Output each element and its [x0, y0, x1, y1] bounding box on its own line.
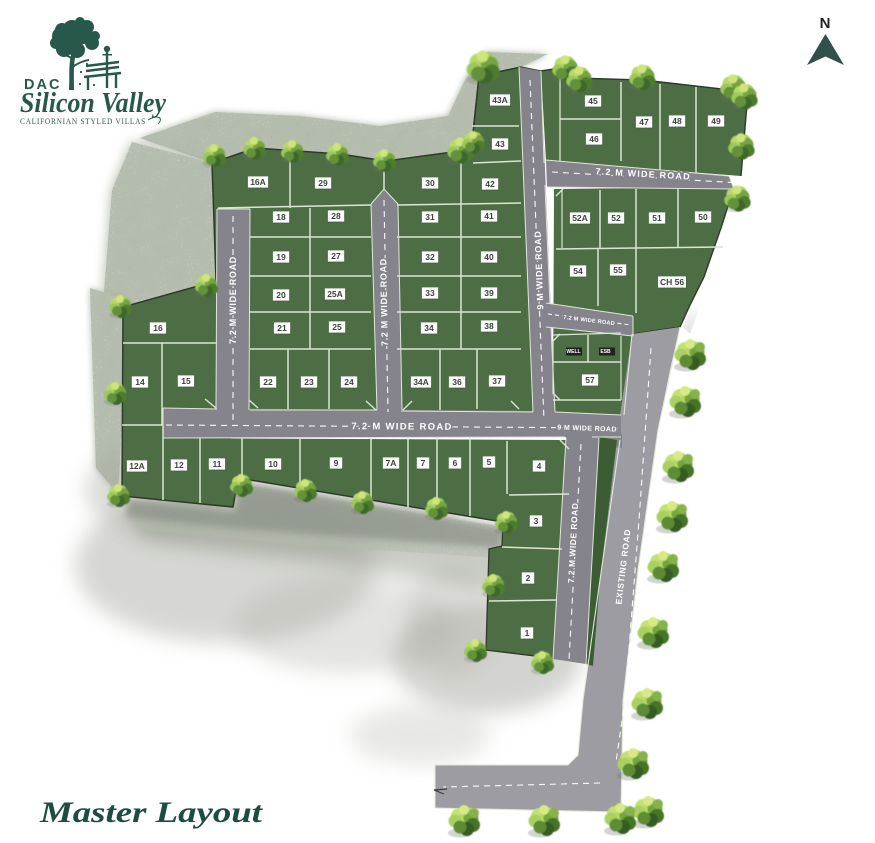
svg-text:55: 55 [613, 265, 623, 275]
svg-text:50: 50 [698, 212, 708, 222]
svg-text:39: 39 [484, 288, 494, 298]
svg-text:21: 21 [277, 323, 287, 333]
svg-text:Master Layout: Master Layout [39, 796, 264, 829]
svg-text:16: 16 [153, 323, 163, 333]
svg-text:34: 34 [424, 323, 434, 333]
svg-text:27: 27 [331, 251, 341, 261]
svg-text:52: 52 [611, 213, 621, 223]
svg-text:25: 25 [332, 322, 342, 332]
svg-text:1: 1 [525, 628, 530, 638]
svg-text:N: N [820, 15, 831, 32]
svg-text:3: 3 [534, 516, 539, 526]
svg-text:WELL: WELL [566, 349, 580, 355]
svg-text:40: 40 [484, 252, 494, 262]
svg-text:19: 19 [276, 252, 286, 262]
svg-text:7.2 M WIDE ROAD: 7.2 M WIDE ROAD [351, 421, 452, 433]
svg-text:14: 14 [135, 377, 145, 387]
svg-text:24: 24 [344, 377, 354, 387]
svg-text:43: 43 [495, 139, 505, 149]
svg-text:7.2 M WIDE ROAD: 7.2 M WIDE ROAD [228, 256, 238, 344]
svg-text:31: 31 [425, 212, 435, 222]
svg-text:23: 23 [304, 377, 314, 387]
svg-text:41: 41 [484, 211, 494, 221]
svg-text:34A: 34A [413, 377, 429, 387]
svg-text:18: 18 [276, 212, 286, 222]
svg-text:25A: 25A [327, 289, 343, 299]
svg-text:22: 22 [263, 377, 273, 387]
svg-text:ESB: ESB [600, 349, 611, 355]
svg-text:49: 49 [711, 116, 721, 126]
svg-text:2: 2 [526, 573, 531, 583]
svg-text:48: 48 [672, 116, 682, 126]
svg-text:Silicon Valley: Silicon Valley [20, 88, 167, 119]
svg-text:43A: 43A [492, 95, 508, 105]
svg-text:7A: 7A [386, 458, 397, 468]
svg-text:10: 10 [268, 459, 278, 469]
svg-text:30: 30 [425, 178, 435, 188]
svg-text:37: 37 [492, 376, 502, 386]
svg-text:9: 9 [334, 458, 339, 468]
svg-text:51: 51 [652, 213, 662, 223]
svg-text:36: 36 [452, 377, 462, 387]
svg-text:20: 20 [276, 290, 286, 300]
svg-text:42: 42 [485, 179, 495, 189]
svg-text:33: 33 [425, 288, 435, 298]
svg-text:4: 4 [537, 461, 542, 471]
svg-text:CALIFORNIAN STYLED VILLAS: CALIFORNIAN STYLED VILLAS [20, 117, 146, 126]
svg-text:38: 38 [484, 321, 494, 331]
svg-text:29: 29 [318, 178, 328, 188]
svg-text:57: 57 [585, 375, 595, 385]
svg-text:45: 45 [588, 96, 598, 106]
svg-text:7.2 M WIDE ROAD: 7.2 M WIDE ROAD [378, 258, 390, 346]
svg-text:46: 46 [589, 134, 599, 144]
svg-text:47: 47 [639, 117, 649, 127]
svg-text:54: 54 [573, 266, 583, 276]
svg-text:28: 28 [331, 211, 341, 221]
svg-text:12A: 12A [129, 461, 145, 471]
svg-text:5: 5 [487, 457, 492, 467]
svg-text:15: 15 [181, 376, 191, 386]
svg-text:12: 12 [174, 460, 184, 470]
svg-text:52A: 52A [572, 213, 588, 223]
svg-text:CH 56: CH 56 [660, 277, 684, 287]
svg-text:7: 7 [421, 458, 426, 468]
svg-text:16A: 16A [250, 177, 266, 187]
svg-text:6: 6 [453, 458, 458, 468]
svg-text:11: 11 [213, 459, 222, 469]
svg-text:32: 32 [425, 252, 435, 262]
